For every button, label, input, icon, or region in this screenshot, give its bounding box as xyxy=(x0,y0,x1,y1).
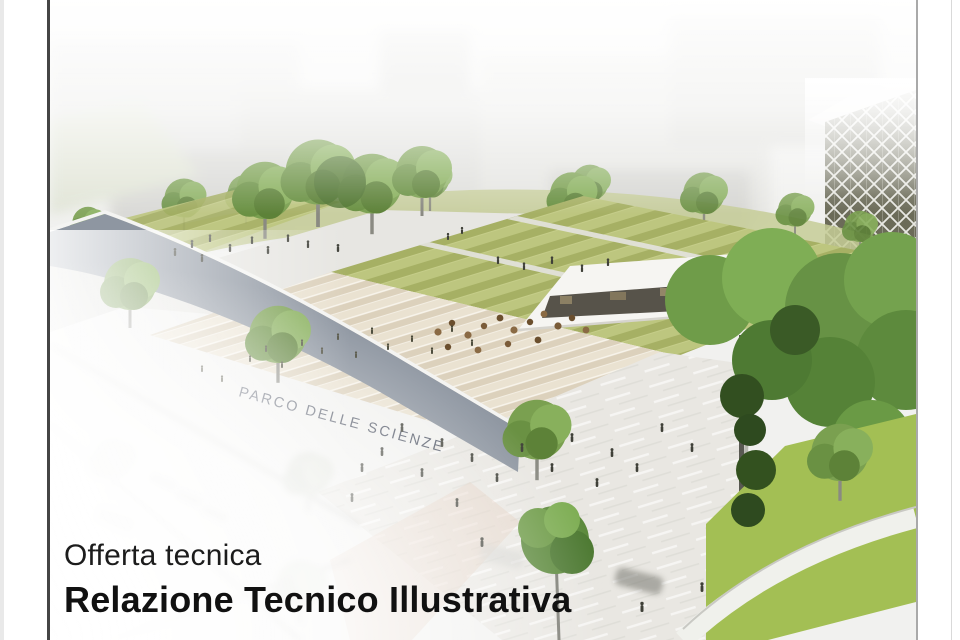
hedge xyxy=(731,493,765,527)
top-fade-overlay xyxy=(50,0,916,215)
document-page: PARCO DELLE SCIENZE xyxy=(0,0,960,640)
document-title: Relazione Tecnico Illustrativa xyxy=(64,579,572,621)
margin-faint-line xyxy=(951,0,952,640)
hedge xyxy=(734,414,766,446)
photo-left-border xyxy=(47,0,50,640)
photo-right-border xyxy=(916,0,918,640)
hedge xyxy=(736,450,776,490)
document-kicker: Offerta tecnica xyxy=(64,538,572,574)
page-edge-strip xyxy=(0,0,4,640)
title-block: Offerta tecnica Relazione Tecnico Illust… xyxy=(64,538,572,621)
